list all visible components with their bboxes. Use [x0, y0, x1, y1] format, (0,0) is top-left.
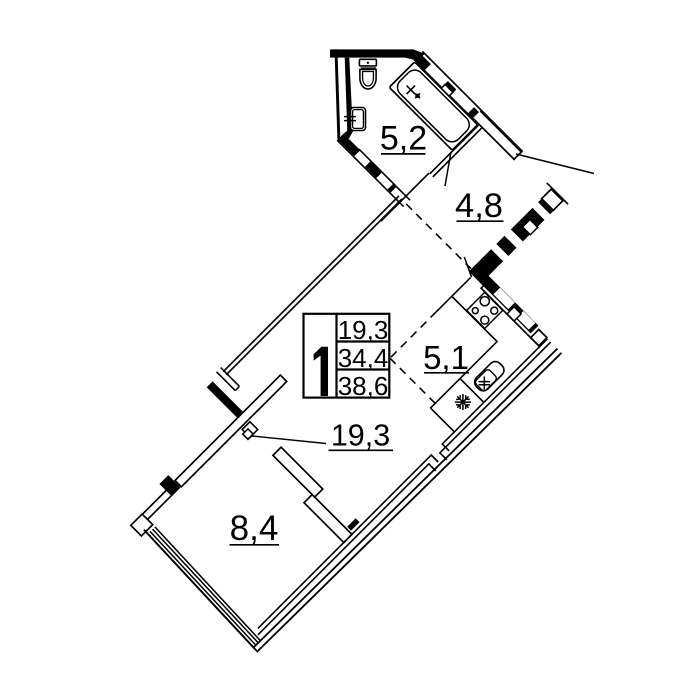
- svg-text:8,4: 8,4: [230, 509, 279, 548]
- svg-text:4,8: 4,8: [455, 187, 503, 225]
- svg-text:34,4: 34,4: [338, 343, 389, 373]
- svg-text:19,3: 19,3: [338, 315, 389, 345]
- svg-text:19,3: 19,3: [331, 419, 390, 453]
- svg-text:5,1: 5,1: [423, 339, 469, 376]
- svg-text:5,2: 5,2: [380, 120, 427, 158]
- svg-text:38,6: 38,6: [338, 371, 389, 401]
